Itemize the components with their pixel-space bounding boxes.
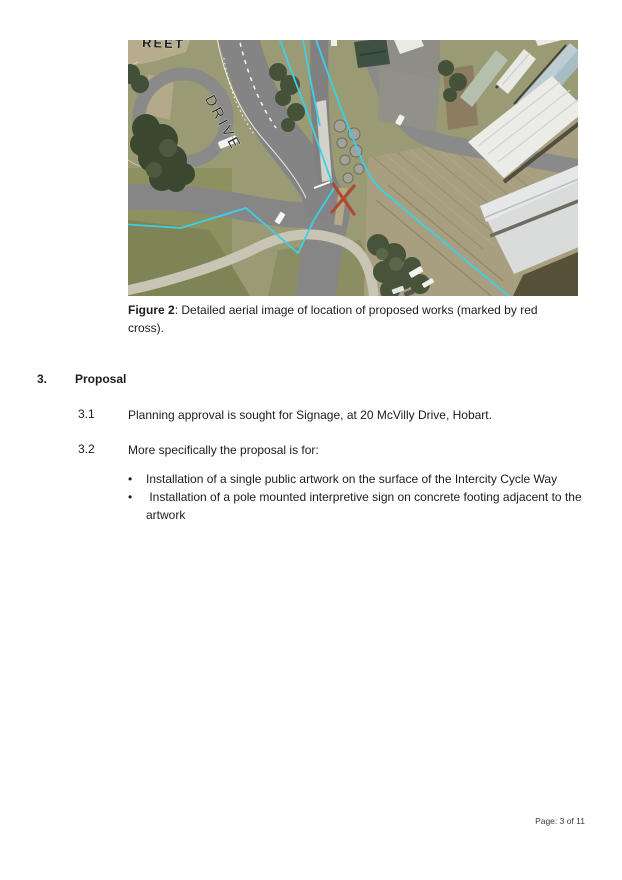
bullet-icon: • bbox=[128, 488, 146, 524]
figure-caption-label: Figure 2 bbox=[128, 303, 175, 317]
street-name-fragment-label: REET bbox=[142, 40, 185, 51]
figure-caption-line2: cross). bbox=[128, 319, 586, 337]
bullet-icon: • bbox=[128, 470, 146, 488]
aerial-photo: DRIVE REET bbox=[128, 40, 578, 296]
figure-caption-text: : Detailed aerial image of location of p… bbox=[175, 303, 538, 317]
road-south bbox=[316, 212, 330, 296]
bullet-text: Installation of a pole mounted interpret… bbox=[146, 488, 584, 524]
item-3-1-number: 3.1 bbox=[78, 407, 95, 421]
page-number-footer: Page: 3 of 11 bbox=[535, 816, 585, 826]
item-3-1-text: Planning approval is sought for Signage,… bbox=[128, 407, 586, 424]
figure-caption-line1: Figure 2: Detailed aerial image of locat… bbox=[128, 301, 586, 319]
item-3-2-number: 3.2 bbox=[78, 442, 95, 456]
section-title: Proposal bbox=[75, 372, 126, 386]
bullet-text: Installation of a single public artwork … bbox=[146, 470, 584, 488]
proposal-bullet-list: • Installation of a single public artwor… bbox=[128, 470, 584, 524]
section-number: 3. bbox=[37, 372, 47, 386]
figure-caption: Figure 2: Detailed aerial image of locat… bbox=[128, 301, 586, 337]
bullet-item: • Installation of a pole mounted interpr… bbox=[128, 488, 584, 524]
car-top bbox=[331, 40, 337, 46]
bullet-item: • Installation of a single public artwor… bbox=[128, 470, 584, 488]
figure-2-aerial-image: DRIVE REET bbox=[128, 40, 578, 296]
green-roof-building bbox=[354, 40, 390, 68]
item-3-2-text: More specifically the proposal is for: bbox=[128, 442, 586, 459]
document-page: DRIVE REET Figure 2: Detailed aerial ima… bbox=[0, 0, 622, 880]
